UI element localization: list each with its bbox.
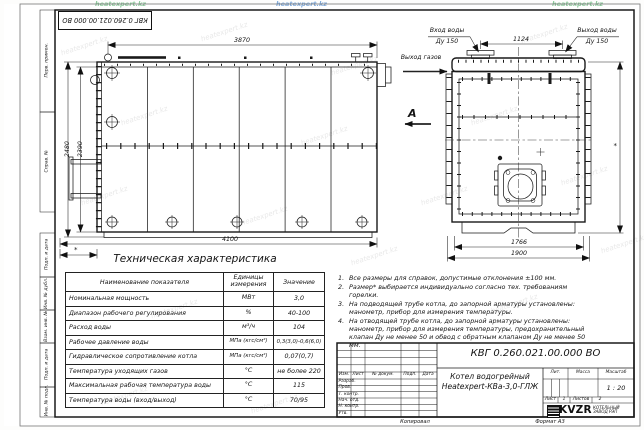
doc-name-line2: Heatexpert-КВа-3,0-ГЛЖ [437, 383, 543, 391]
frame-label-sprav: Справ. № [45, 111, 50, 211]
table-row: Диапазон рабочего регулирования%40-100 [66, 306, 324, 321]
table-row: Рабочее давление водыМПа (кгс/см²)0,3(3,… [66, 335, 324, 350]
table-row: Температура уходящих газов°Сне более 220 [66, 364, 324, 379]
dim-star-left: * [74, 247, 78, 254]
scale-value: 1 : 20 [598, 385, 634, 392]
spec-header-row: Наименование показателя Единицы измерени… [66, 273, 324, 291]
doc-name-line1: Котел водогрейный [437, 373, 543, 381]
tb-col-data: Дата [419, 373, 437, 377]
tb-col-izm: Изм. [337, 373, 351, 377]
tb-role-tkontr: Т. контр. [339, 393, 359, 397]
table-row: Гидравлическое сопротивление котлаМПа (к… [66, 349, 324, 364]
frame-label-podp-data-1: Подп. и дата [45, 232, 50, 276]
drawing-sheet: heatexpert.kz heatexpert.kz heatexpert.k… [0, 0, 644, 430]
dim-star-right: * [614, 143, 618, 150]
top-stamp: КВГ 0.260.021.00.000 ВО [58, 11, 152, 30]
frame-label-inv-podl: Инв. № подл. [45, 386, 50, 416]
scale-label: Масштаб [598, 371, 634, 375]
doc-number: КВГ 0.260.021.00.000 ВО [437, 349, 634, 359]
dim-1900: 1900 [499, 251, 539, 257]
table-row: Расход водым³/ч104 [66, 320, 324, 335]
table-row: Максимальная рабочая температура воды°С1… [66, 378, 324, 393]
dim-4100: 4100 [210, 237, 250, 243]
tb-role-utv: Утв. [339, 412, 348, 416]
label-water-in: Вход воды [424, 28, 470, 34]
table-row: Температура воды (вход/выход)°С70/95 [66, 393, 324, 408]
dim-1766: 1766 [499, 240, 539, 246]
tb-col-docnum: № докум. [365, 373, 401, 377]
note-item: 2.Размер* выбирается индивидуально согла… [338, 283, 594, 299]
kvzr-logo-icon [547, 405, 560, 418]
note-item: 3.На подводящей трубе котла, до запорной… [338, 300, 594, 316]
tb-col-list: Лист [351, 373, 365, 377]
format-label: Формат А3 [522, 420, 578, 425]
sheets-number: 2 [592, 398, 608, 402]
dimension-lines [60, 37, 624, 262]
frame-label-perv-primen: Перв. примен. [45, 10, 50, 110]
sheet-label: Лист [543, 398, 558, 402]
sheet-number: 1 [558, 398, 570, 402]
lit-label: Лит. [543, 371, 568, 375]
tb-role-prov: Пров. [339, 386, 352, 390]
sheets-label: Листов [570, 398, 592, 402]
dim-2390: 2390 [77, 135, 83, 163]
tb-col-podp: Подп. [401, 373, 419, 377]
label-water-in-dn: Ду 150 [424, 39, 470, 45]
dim-3870: 3870 [222, 38, 262, 44]
dim-1124: 1124 [501, 37, 541, 43]
copied-label: Копировал [380, 420, 450, 425]
notes-list: 1.Все размеры для справок, допустимые от… [338, 274, 594, 350]
table-row: Номинальная мощностьМВт3,0 [66, 291, 324, 306]
spec-table: Наименование показателя Единицы измерени… [65, 272, 325, 408]
note-item: 4.На отводящей трубе котла, до запорной … [338, 317, 594, 349]
boiler-front-view [445, 47, 592, 241]
kvzr-logo-text: KVZR [559, 405, 592, 416]
label-water-out: Выход воды [573, 28, 621, 34]
tb-role-nachotd: Нач. отд. [339, 399, 360, 403]
spec-table-title: Техническая характеристика [85, 254, 305, 265]
label-view-a: А [408, 108, 417, 119]
frame-label-podp-data-2: Подп. и дата [45, 342, 50, 386]
mass-label: Масса [568, 371, 598, 375]
kvzr-logo-subtext: КОТЕЛЬНЫЙ ЗАВОД РЭП [593, 406, 620, 416]
tb-role-nkontr: Н. контр. [339, 405, 360, 409]
label-water-out-dn: Ду 150 [573, 39, 621, 45]
dim-2480: 2480 [65, 135, 71, 163]
frame-label-vzam-inv: Взам. инв. № [45, 309, 50, 342]
note-item: 1.Все размеры для справок, допустимые от… [338, 274, 594, 282]
frame-label-inv-dubl: Инв. № дубл. [45, 276, 50, 309]
boiler-side-view [69, 54, 391, 238]
label-gas-out: Выход газов [394, 55, 448, 61]
tb-role-razrab: Разраб. [339, 380, 356, 384]
